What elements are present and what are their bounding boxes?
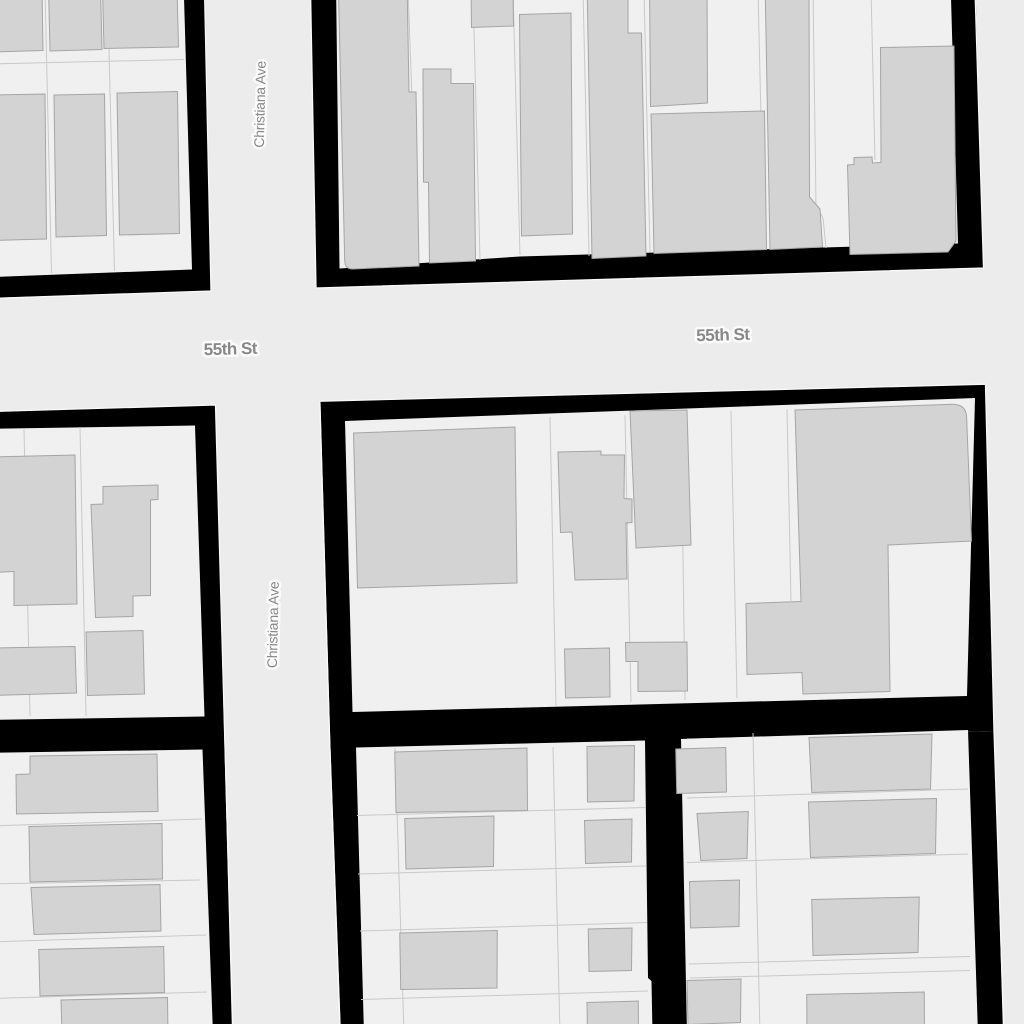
svg-text:Christiana Ave: Christiana Ave [251,60,269,147]
svg-text:55th St: 55th St [696,325,751,346]
svg-text:Christiana Ave: Christiana Ave [264,581,282,668]
svg-text:55th St: 55th St [203,339,258,360]
